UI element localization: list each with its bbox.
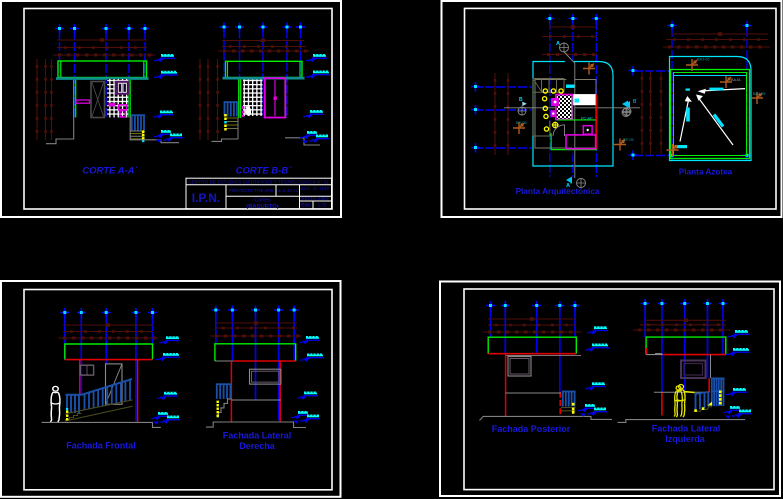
svg-text:Fachada Lateral: Fachada Lateral	[652, 424, 721, 434]
svg-text:PC-AP: PC-AP	[581, 117, 593, 121]
svg-text:I.P.N.: I.P.N.	[192, 191, 220, 205]
svg-text:CORTE B-B´: CORTE B-B´	[236, 166, 293, 177]
svg-text:A: A	[556, 41, 560, 47]
svg-text:1:75: 1:75	[318, 203, 327, 208]
svg-text:Fachada Frontal: Fachada Frontal	[66, 441, 136, 451]
svg-text:Fachada Lateral: Fachada Lateral	[223, 431, 292, 441]
svg-text:CENTRO DE ESTUDIOS CIENTIFICOS: CENTRO DE ESTUDIOS CIENTIFICOS Y TECNOLO…	[189, 180, 329, 185]
svg-text:Planta Arquitectónica: Planta Arquitectónica	[516, 187, 600, 196]
svg-text:PROYECTO TITE APB: PROYECTO TITE APB	[229, 188, 273, 193]
svg-text:B´: B´	[633, 99, 638, 105]
svg-text:acot. m. /100: acot. m. /100	[301, 186, 330, 191]
svg-text:B: B	[519, 97, 523, 103]
svg-text:m.1.40 co: m.1.40 co	[278, 188, 299, 193]
svg-text:BAJA: BAJA	[731, 78, 741, 82]
svg-text:Planta Azotea: Planta Azotea	[679, 168, 733, 177]
svg-text:Izquierda: Izquierda	[665, 434, 706, 444]
svg-text:BAJ-05: BAJ-05	[697, 58, 709, 62]
svg-text:Cortes: Cortes	[254, 198, 271, 204]
svg-text:BAJ-05: BAJ-05	[753, 92, 765, 96]
svg-text:FECHA 2004: FECHA 2004	[302, 196, 328, 201]
svg-text:ESC: ESC	[301, 203, 311, 208]
svg-text:BP-05: BP-05	[623, 138, 634, 142]
svg-text:(BASURTO): (BASURTO)	[246, 204, 278, 210]
svg-text:CORTE A-A´: CORTE A-A´	[82, 166, 138, 177]
svg-text:Fachada Posterior: Fachada Posterior	[492, 424, 571, 434]
svg-text:Derecha: Derecha	[239, 441, 276, 451]
